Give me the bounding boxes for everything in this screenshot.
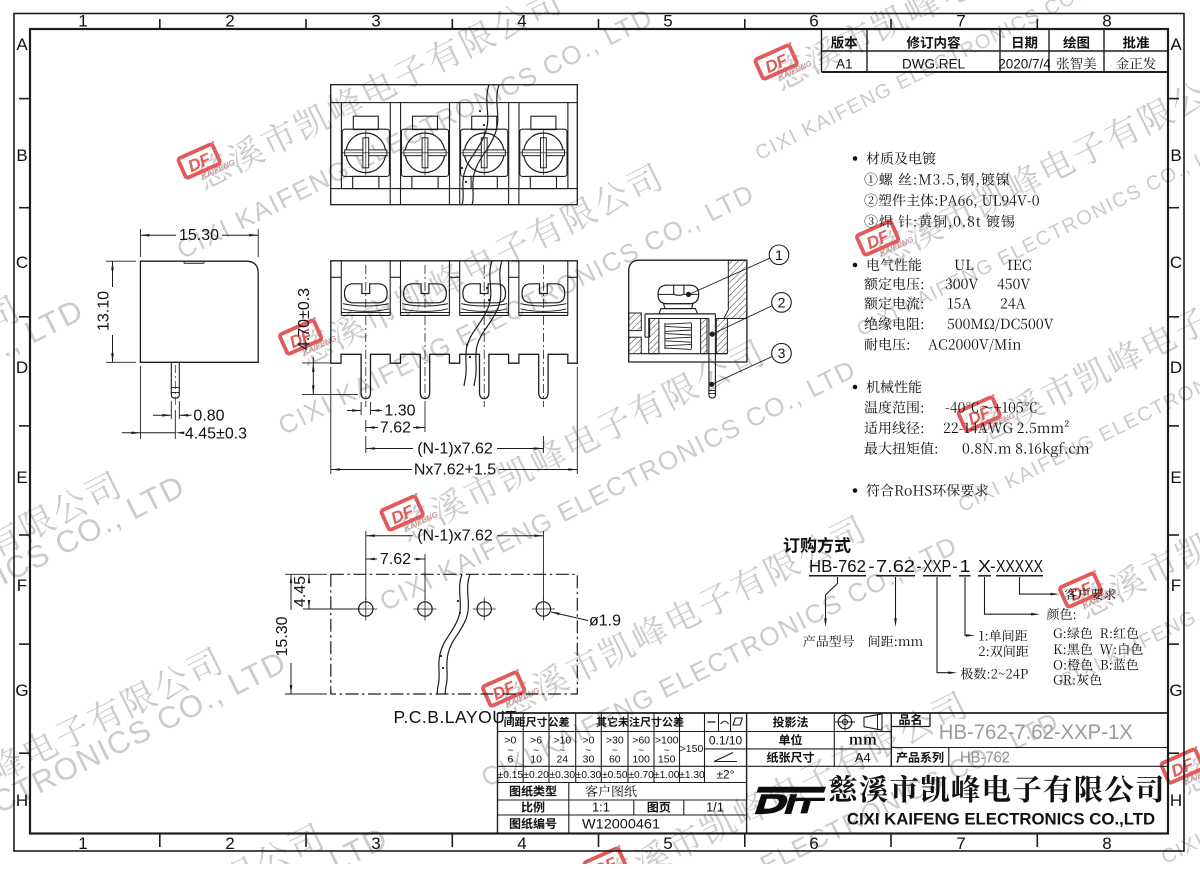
svg-text:10: 10 [530, 754, 542, 766]
svg-text:-: - [869, 556, 875, 576]
svg-text:B: B [16, 146, 27, 165]
svg-text:24: 24 [556, 754, 568, 766]
svg-text:Nx7.62+1.5: Nx7.62+1.5 [414, 462, 496, 479]
svg-text:C: C [16, 253, 28, 272]
svg-text:1:1: 1:1 [592, 800, 610, 815]
svg-text:D: D [16, 358, 28, 377]
svg-text:±0.30: ±0.30 [576, 770, 602, 781]
svg-text:DWG.REL: DWG.REL [902, 57, 965, 72]
svg-text:±2°: ±2° [716, 768, 734, 782]
svg-text:0.80: 0.80 [193, 407, 224, 424]
svg-text:100: 100 [632, 754, 650, 766]
svg-text:-: - [917, 556, 922, 576]
svg-text:A4: A4 [855, 750, 871, 765]
svg-text:5: 5 [663, 12, 672, 31]
svg-text:A1: A1 [836, 57, 853, 72]
svg-text:H: H [1170, 791, 1182, 810]
svg-text:W12000461: W12000461 [582, 816, 660, 832]
svg-text:7.62: 7.62 [380, 420, 411, 437]
svg-text:3: 3 [778, 345, 786, 361]
svg-text:XXXXX: XXXXX [996, 556, 1043, 576]
svg-text:G: G [15, 681, 28, 700]
svg-text:±0.50: ±0.50 [602, 770, 628, 781]
svg-text:150: 150 [658, 754, 676, 766]
svg-text:3: 3 [371, 834, 380, 853]
svg-text:±0.70: ±0.70 [628, 770, 654, 781]
svg-text:4: 4 [517, 12, 526, 31]
svg-text:1/1: 1/1 [706, 800, 724, 815]
svg-text:2: 2 [225, 834, 234, 853]
svg-text:HB-762: HB-762 [809, 556, 866, 576]
svg-text:A: A [16, 35, 28, 54]
svg-text:F: F [1171, 576, 1181, 595]
svg-text:6: 6 [507, 754, 513, 766]
svg-text:1.30: 1.30 [384, 403, 415, 420]
svg-text:±1.30: ±1.30 [679, 770, 705, 781]
svg-text:8: 8 [1102, 12, 1111, 31]
svg-text:6: 6 [809, 834, 818, 853]
svg-text:A: A [1170, 35, 1182, 54]
svg-text:(N-1)x7.62: (N-1)x7.62 [417, 528, 493, 545]
svg-text:7: 7 [956, 12, 965, 31]
svg-text:13.10: 13.10 [96, 291, 113, 331]
svg-text:1: 1 [775, 247, 783, 263]
svg-text:2: 2 [778, 294, 786, 310]
svg-text:(N-1)x7.62: (N-1)x7.62 [417, 441, 493, 458]
svg-text:±0.30: ±0.30 [550, 770, 576, 781]
svg-text:XXP: XXP [923, 556, 951, 576]
svg-text:F: F [17, 576, 27, 595]
svg-text:HB-762-7.62-XXP-1X: HB-762-7.62-XXP-1X [939, 720, 1133, 744]
svg-text:>150: >150 [680, 743, 704, 755]
svg-text:8: 8 [1102, 834, 1111, 853]
svg-text:6: 6 [809, 12, 818, 31]
svg-text:2: 2 [225, 12, 234, 31]
svg-text:2020/7/4: 2020/7/4 [998, 57, 1051, 72]
svg-text:7.62: 7.62 [380, 551, 411, 568]
svg-text:C: C [1170, 253, 1182, 272]
svg-text:-: - [990, 556, 996, 576]
svg-text:15.30: 15.30 [179, 227, 219, 244]
svg-text:4.70±0.3: 4.70±0.3 [296, 288, 313, 350]
svg-text:3: 3 [371, 12, 380, 31]
svg-text:1: 1 [78, 12, 87, 31]
svg-text:0.1/10: 0.1/10 [709, 734, 743, 748]
svg-text:HB-762: HB-762 [960, 750, 1010, 767]
svg-text:±1.00: ±1.00 [654, 770, 680, 781]
svg-text:7: 7 [956, 834, 965, 853]
svg-text:±0.20: ±0.20 [523, 770, 549, 781]
svg-text:4: 4 [517, 834, 526, 853]
svg-text:D: D [1170, 358, 1182, 377]
svg-text:60: 60 [609, 754, 621, 766]
svg-text:1: 1 [960, 556, 971, 576]
svg-text:7.62: 7.62 [876, 556, 915, 576]
svg-text:1: 1 [78, 834, 87, 853]
svg-text:4.45±0.3: 4.45±0.3 [185, 425, 247, 442]
svg-text:30: 30 [583, 754, 595, 766]
svg-text:G: G [1169, 681, 1182, 700]
svg-text:5: 5 [663, 834, 672, 853]
svg-text:ø1.9: ø1.9 [589, 613, 621, 630]
svg-text:B: B [1170, 146, 1181, 165]
svg-text:-: - [953, 556, 958, 576]
svg-text:H: H [16, 791, 28, 810]
svg-text:4.45: 4.45 [292, 576, 309, 607]
svg-text:E: E [16, 468, 27, 487]
svg-text:±0.15: ±0.15 [498, 770, 524, 781]
svg-text:E: E [1170, 468, 1181, 487]
svg-text:15.30: 15.30 [274, 616, 291, 656]
svg-text:CIXI KAIFENG ELECTRONICS CO.,L: CIXI KAIFENG ELECTRONICS CO.,LTD [847, 810, 1155, 829]
